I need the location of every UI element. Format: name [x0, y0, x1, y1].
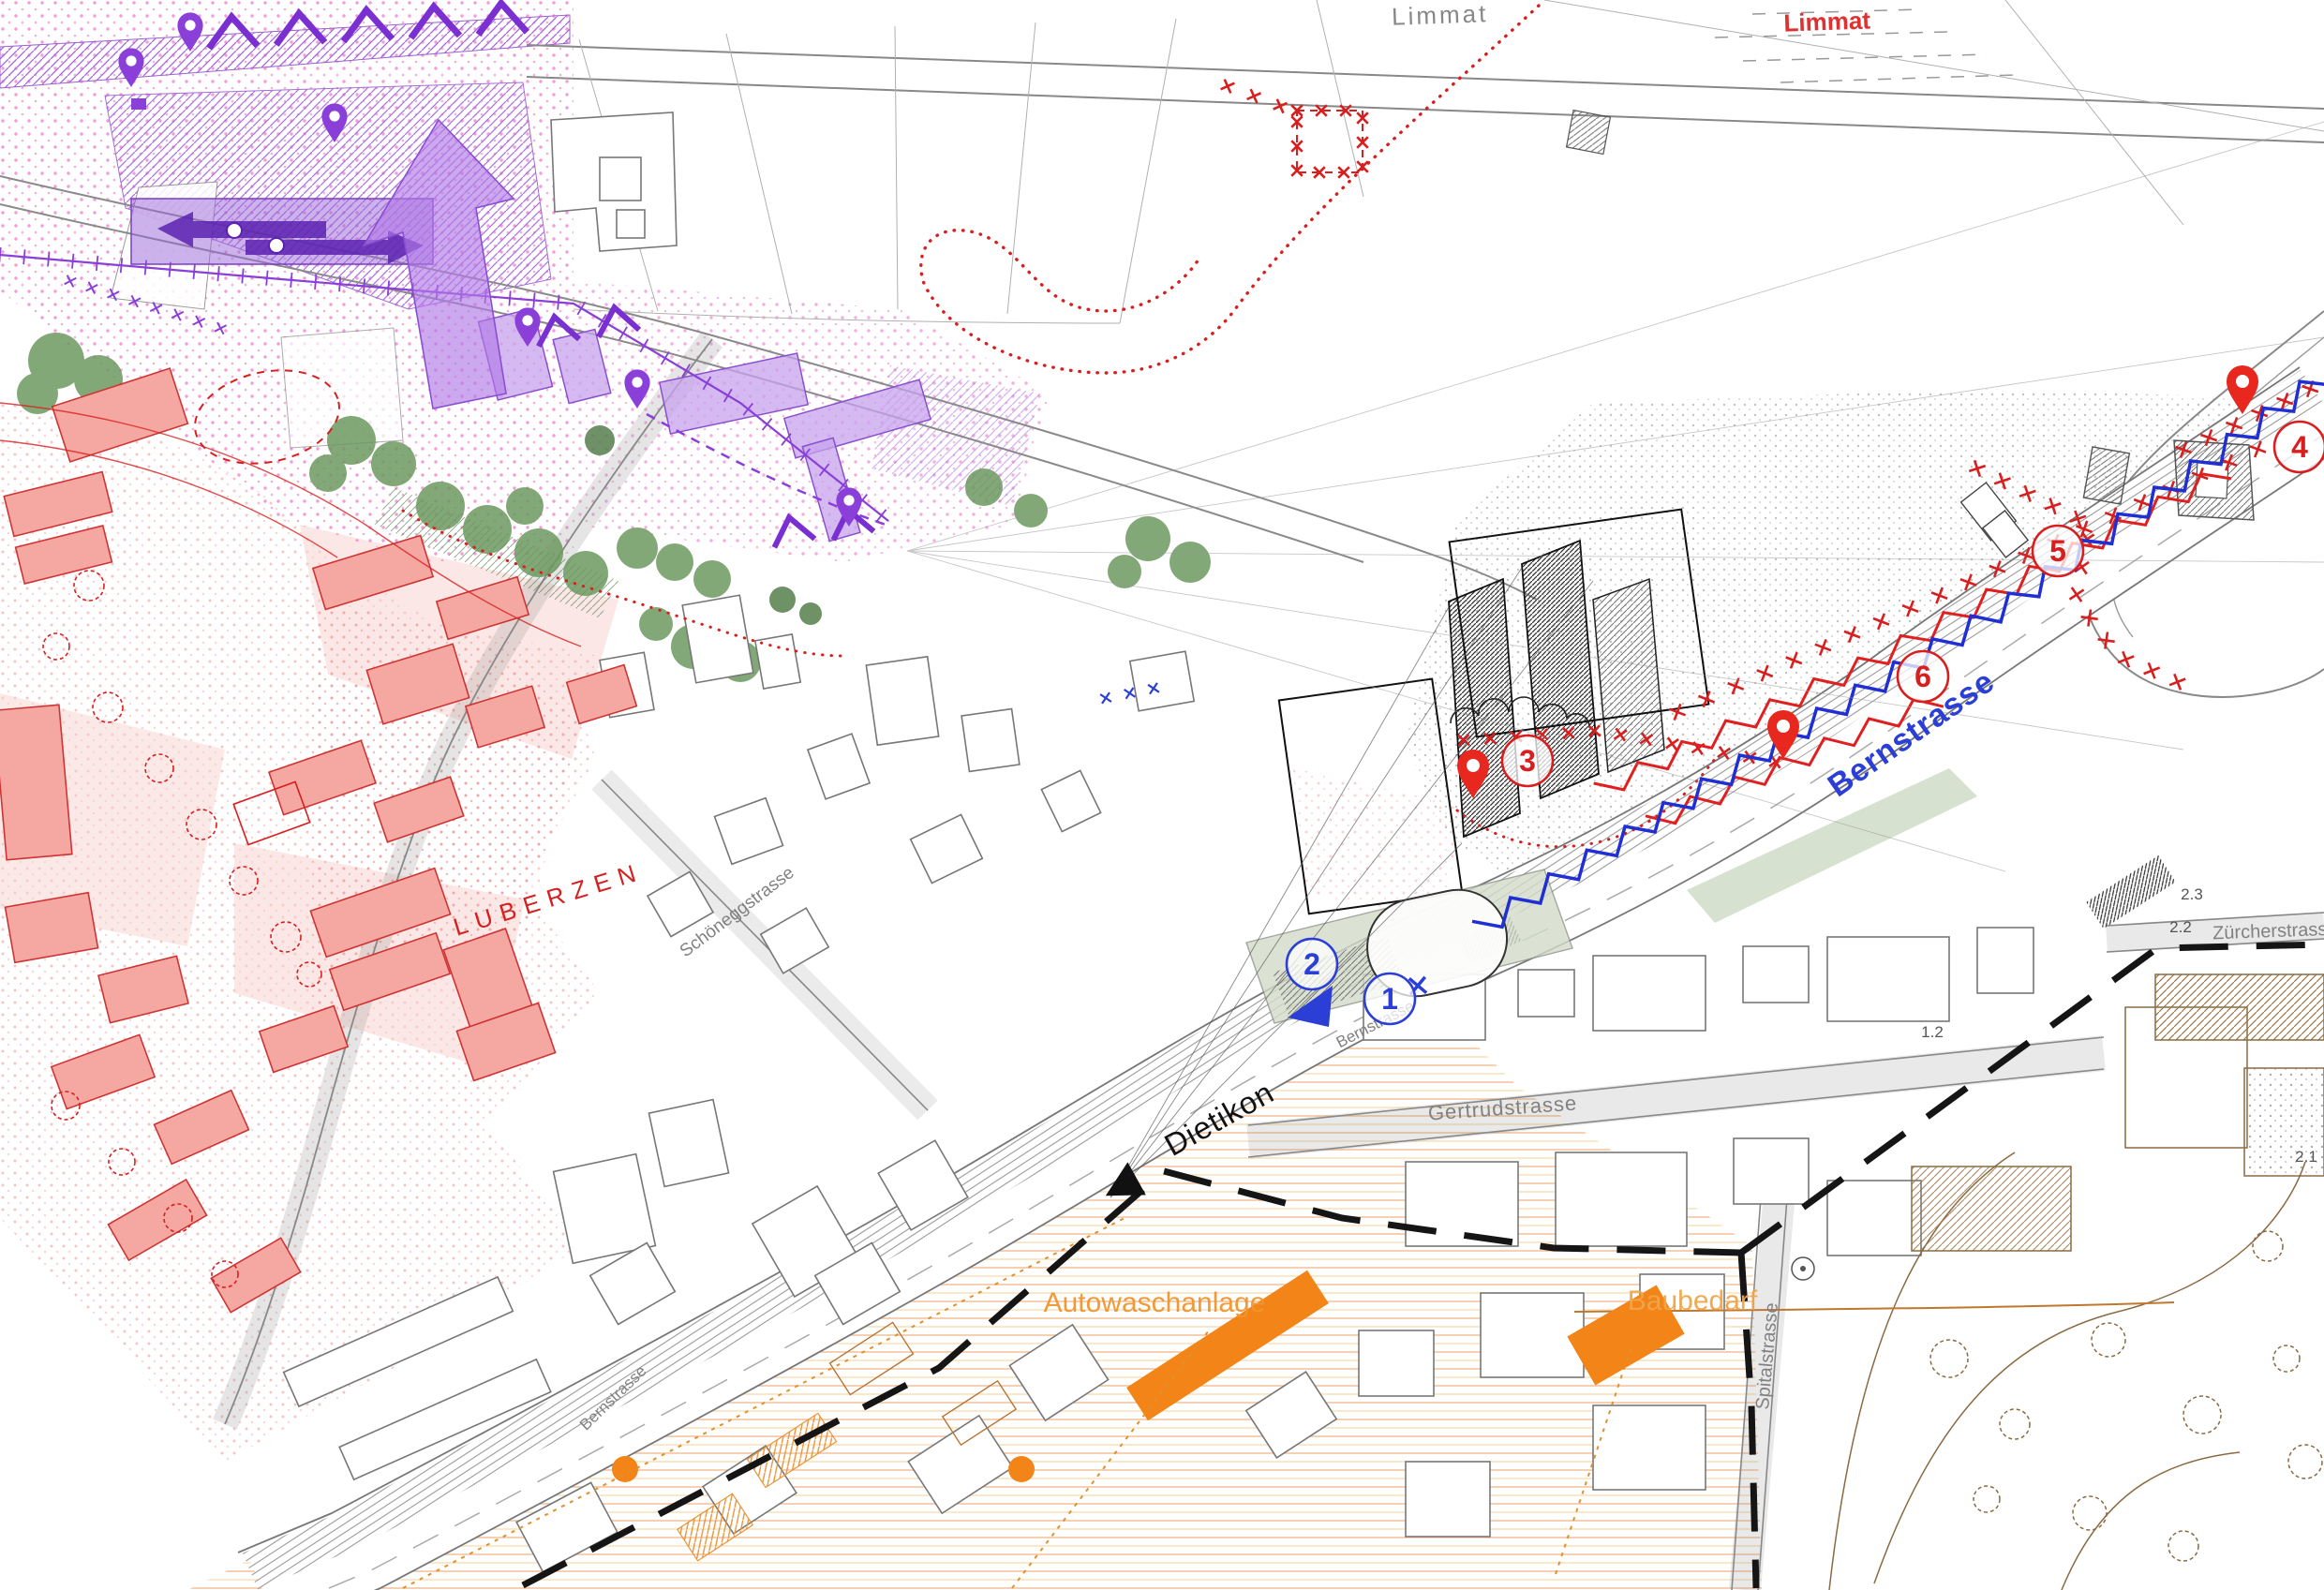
- label-meas-21: 2.1: [2295, 1148, 2317, 1166]
- marker-3[interactable]: 3: [1502, 736, 1553, 786]
- label-autowaschanlage: Autowaschanlage: [1044, 1287, 1266, 1318]
- svg-text:1: 1: [1381, 982, 1398, 1016]
- label-meas-12: 1.2: [1921, 1023, 1944, 1041]
- svg-text:2: 2: [1304, 947, 1320, 981]
- label-meas-23: 2.3: [2181, 885, 2203, 903]
- label-limmat-red: Limmat: [1783, 6, 1871, 37]
- label-limmat-gray: Limmat: [1392, 0, 1489, 31]
- marker-6[interactable]: 6: [1898, 651, 1948, 702]
- bus-stop-icon: [131, 98, 146, 110]
- marker-4[interactable]: 4: [2274, 422, 2324, 472]
- map-canvas: Limmat Limmat Bernstrasse LUBERZEN Dieti…: [0, 0, 2324, 1590]
- marker-2[interactable]: 2: [1287, 939, 1337, 989]
- label-zuercherstrasse: Zürcherstrasse: [2212, 919, 2324, 944]
- svg-text:5: 5: [2049, 534, 2066, 568]
- marker-5[interactable]: 5: [2033, 526, 2083, 576]
- svg-text:4: 4: [2291, 430, 2308, 464]
- label-baubedarf: Baubedarf: [1628, 1285, 1758, 1316]
- marker-1[interactable]: 1: [1364, 973, 1415, 1024]
- label-meas-22: 2.2: [2169, 918, 2192, 936]
- svg-text:3: 3: [1519, 744, 1536, 778]
- masterplan-svg: Limmat Limmat Bernstrasse LUBERZEN Dieti…: [0, 0, 2324, 1590]
- svg-text:6: 6: [1914, 660, 1931, 693]
